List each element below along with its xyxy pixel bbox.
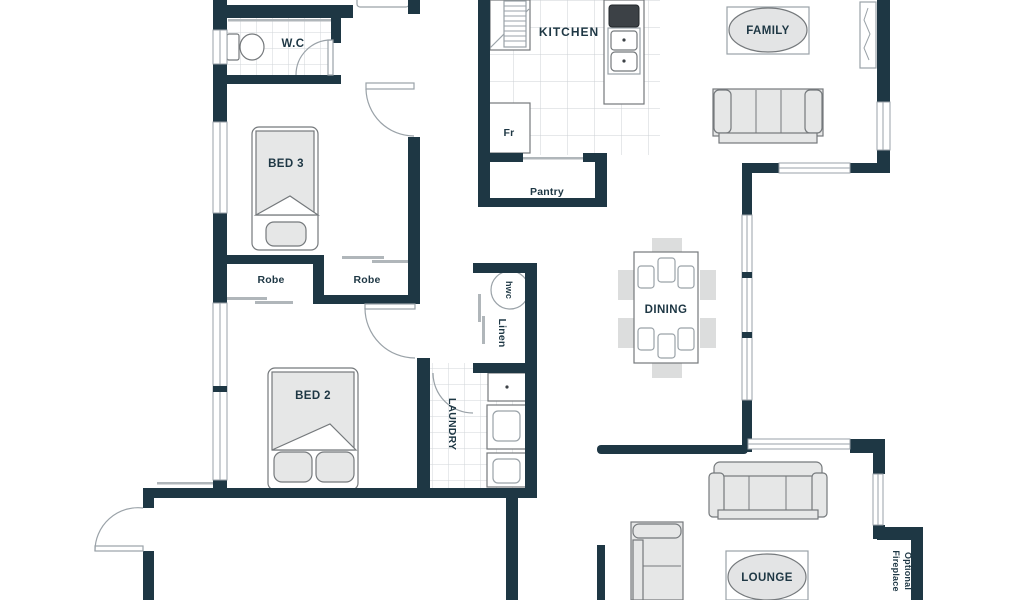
bed3-window: [213, 122, 227, 213]
laundry-appliances: [487, 373, 526, 487]
family-east-window: [877, 102, 890, 150]
family-sofa-icon: [713, 89, 823, 143]
wc-label: W.C: [282, 38, 305, 50]
family-label: FAMILY: [746, 25, 790, 37]
robe-left-label: Robe: [257, 274, 284, 286]
linen-label: Linen: [496, 319, 508, 348]
bed3-icon: [252, 127, 318, 250]
floor-plan-svg: W.C BED 3 Robe Robe BED 2 LAUNDRY hwc Li…: [0, 0, 1024, 600]
lounge-sofa-icon: [709, 462, 827, 519]
toilet-icon: [227, 34, 264, 60]
fireplace-label-line2: Optional: [903, 552, 913, 590]
bed3-label: BED 3: [268, 158, 304, 170]
wc-window: [213, 30, 227, 64]
fireplace-label-line1: Fireplace: [891, 550, 901, 591]
island-bench: [604, 0, 644, 104]
pantry-label: Pantry: [530, 186, 564, 198]
lounge-east-window: [873, 474, 883, 525]
wall-unit-icon: [860, 2, 876, 68]
dining-label: DINING: [645, 304, 688, 316]
kitchen-bench: [490, 0, 530, 50]
fridge-label: Fr: [504, 127, 515, 139]
bed3-door: [366, 83, 414, 136]
lounge-sofa2-icon: [631, 522, 683, 600]
lounge-north-window: [748, 439, 850, 449]
bed2-window: [213, 303, 227, 480]
kitchen-label: KITCHEN: [539, 25, 599, 39]
laundry-label: LAUNDRY: [446, 398, 458, 450]
hwc-label: hwc: [504, 281, 514, 299]
vanity-icon: [357, 0, 409, 7]
dining-window: [742, 215, 752, 400]
bed2-door: [365, 304, 415, 358]
robe-right-label: Robe: [353, 274, 380, 286]
bed2-icon: [268, 368, 358, 490]
family-south-window: [779, 163, 850, 173]
floor-plan-canvas: W.C BED 3 Robe Robe BED 2 LAUNDRY hwc Li…: [0, 0, 1024, 600]
bed2-label: BED 2: [295, 390, 331, 402]
lounge-label: LOUNGE: [741, 572, 793, 584]
shower-screen-line: [228, 19, 332, 22]
cooktop-icon: [609, 5, 639, 27]
entry-door: [95, 508, 143, 551]
